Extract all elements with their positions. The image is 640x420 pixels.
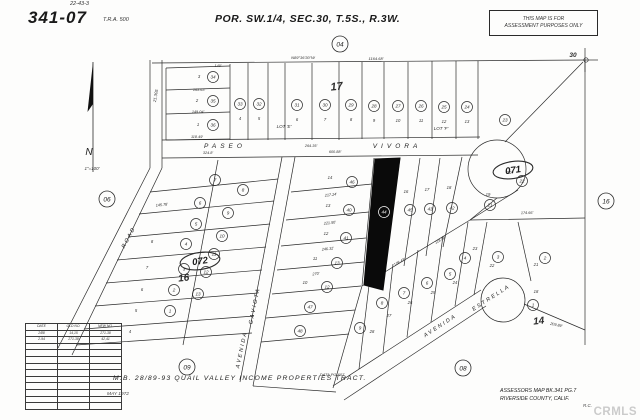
correction-cell xyxy=(58,356,90,363)
map-annotation: 14 xyxy=(533,315,546,327)
correction-cell xyxy=(26,389,58,396)
lot-number: 26 xyxy=(407,300,413,305)
map-annotation: 246.32' xyxy=(321,246,335,251)
correction-cell: 2-94 xyxy=(26,337,58,344)
lot-number: 21 xyxy=(533,262,539,267)
parcel-boundary-line xyxy=(470,218,585,220)
lot-number: 28 xyxy=(369,329,375,334)
lot-number: 23 xyxy=(472,246,478,251)
map-annotation: 209.89' xyxy=(549,322,563,329)
map-annotation: 264.35' xyxy=(304,144,318,148)
correction-cell: 42,41 xyxy=(90,337,122,344)
map-book-page-number: 341-07 xyxy=(28,8,87,28)
lot-number: 14 xyxy=(328,175,333,180)
map-annotation: 1164.68' xyxy=(369,56,384,61)
adjacent-page-number: 09 xyxy=(183,364,191,371)
correction-cell xyxy=(90,343,122,350)
lot-number: 18 xyxy=(447,185,452,190)
assessment-disclaimer-box: THIS MAP IS FOR ASSESSMENT PURPOSES ONLY xyxy=(489,10,598,36)
correction-cell xyxy=(90,403,122,410)
parcel-number: 5 xyxy=(195,222,198,227)
correction-cell xyxy=(58,363,90,370)
parcel-number: 3 xyxy=(497,255,500,260)
parcel-boundary-line xyxy=(470,198,497,220)
lot-number: 24 xyxy=(452,280,458,285)
parcel-boundary-line xyxy=(407,250,418,337)
parcel-number: 22 xyxy=(518,179,525,184)
scale-label: 1"=100' xyxy=(84,166,99,171)
parcel-number: 44 xyxy=(381,210,387,215)
parcel-number: 36 xyxy=(210,123,216,128)
parcel-number: 2 xyxy=(543,256,547,261)
map-annotation: 221.50' xyxy=(323,220,337,225)
correction-cell xyxy=(26,350,58,357)
correction-cell xyxy=(58,383,90,390)
parcel-boundary-line xyxy=(281,238,366,246)
parcel-boundary-line xyxy=(344,306,486,400)
parcel-number: 7 xyxy=(214,178,217,183)
disclaimer-line1: THIS MAP IS FOR xyxy=(523,16,564,24)
parcel-number: 35 xyxy=(210,99,216,104)
parcel-number: 7 xyxy=(403,291,406,296)
north-arrow-icon xyxy=(88,62,94,112)
map-annotation: 174.66' xyxy=(521,211,534,215)
lot-number: 11 xyxy=(313,256,317,261)
assessor-line2: RIVERSIDE COUNTY, CALIF. xyxy=(500,396,576,404)
street-name-label: ESTRELLA xyxy=(471,284,511,313)
map-annotation: 270' xyxy=(311,272,320,277)
lot-number: 25 xyxy=(430,290,436,295)
lot-number: 16 xyxy=(404,189,409,194)
parcel-number: 13 xyxy=(334,261,340,266)
correction-cell: 271-38 xyxy=(90,330,122,337)
adjacent-page-number: 04 xyxy=(336,41,344,48)
map-date: MAY 1972 xyxy=(107,392,129,397)
map-annotation: 600.88' xyxy=(329,150,342,154)
correction-cell: 271-38 xyxy=(58,337,90,344)
lot-number: 5 xyxy=(135,308,138,313)
parcel-number: 9 xyxy=(227,211,230,216)
parcel-number: 25 xyxy=(440,105,447,110)
street-name-label: AVENIDA xyxy=(422,313,458,339)
street-name-label: AVENIDA xyxy=(235,331,249,370)
parcel-boundary-line xyxy=(162,155,478,158)
parcel-boundary-line xyxy=(277,262,364,270)
parcel-boundary-line xyxy=(431,236,443,322)
parcel-boundary-line xyxy=(505,62,583,142)
parcel-boundary-line xyxy=(443,157,462,247)
lot-number: 19 xyxy=(486,192,491,197)
lot-number: 7 xyxy=(324,117,327,122)
assessor-line1: ASSESSORS MAP BK.341 PG.7 xyxy=(500,388,576,396)
map-annotation: N89°36'30"W xyxy=(291,55,316,60)
lot-number: 17 xyxy=(425,187,430,192)
map-annotation: 163.63' xyxy=(193,88,206,92)
parcel-number: 4 xyxy=(185,242,188,247)
parcel-number: 4 xyxy=(464,256,467,261)
correction-cell xyxy=(58,396,90,403)
parcel-boundary-line xyxy=(128,224,270,237)
parcel-boundary-line xyxy=(474,222,487,295)
parcel-number: 27 xyxy=(394,104,401,109)
parcel-number: 23 xyxy=(501,118,508,123)
parcel-boundary-line xyxy=(253,157,295,386)
parcel-number: 41 xyxy=(343,236,349,241)
lot-number: 9 xyxy=(373,118,376,123)
parcel-number: 40 xyxy=(346,208,352,213)
correction-cell xyxy=(26,396,58,403)
correction-cell xyxy=(58,389,90,396)
parcel-boundary-line xyxy=(272,286,361,294)
parcel-boundary-line xyxy=(240,157,282,382)
parcel-number: 28 xyxy=(370,104,377,109)
parcel-number: 33 xyxy=(237,102,243,107)
disclaimer-line2: ASSESSMENT PURPOSES ONLY xyxy=(505,23,583,31)
correction-cell: 14,15 xyxy=(58,330,90,337)
correction-cell xyxy=(58,376,90,383)
tract-reference: M.B. 28/89-93 QUAIL VALLEY INCOME PROPER… xyxy=(113,375,367,382)
lot-number: 4 xyxy=(239,116,242,121)
adjacent-page-number: 06 xyxy=(103,196,111,203)
lot-number: 8 xyxy=(151,239,154,244)
lot-number: 3 xyxy=(198,74,201,79)
map-annotation: LOT 'F' xyxy=(434,126,449,131)
street-name-label: GAVIOTA xyxy=(248,287,262,325)
lot-number: 8 xyxy=(350,117,353,122)
map-annotation: 324.8' xyxy=(203,151,214,155)
cross-reference-number: 22-43-3 xyxy=(70,1,89,7)
parcel-number: 1 xyxy=(532,303,535,308)
correction-cell xyxy=(26,403,58,410)
parcel-number: 6 xyxy=(426,281,429,286)
north-label: N xyxy=(85,147,93,158)
parcel-number: 8 xyxy=(381,301,384,306)
parcel-number: 12 xyxy=(324,285,330,290)
map-annotation: 16 xyxy=(178,272,191,284)
correction-cell xyxy=(26,376,58,383)
lot-number: 22 xyxy=(489,263,495,268)
parcel-number: 8 xyxy=(242,188,245,193)
parcel-number: 10 xyxy=(219,234,225,239)
parcel-number: 26 xyxy=(417,104,424,109)
correction-cell: NEW NO. xyxy=(90,324,122,331)
correction-cell xyxy=(58,370,90,377)
parcel-number: 42 xyxy=(449,206,455,211)
map-annotation: 145.78' xyxy=(156,202,169,207)
crmls-watermark: CRMLS xyxy=(594,406,637,418)
lot-number: 7 xyxy=(146,265,149,270)
parcel-number: 12 xyxy=(203,270,209,275)
correction-cell: OLD NO. xyxy=(58,324,90,331)
parcel-number: 6 xyxy=(199,201,202,206)
correction-cell xyxy=(90,356,122,363)
highlighted-subject-parcel[interactable] xyxy=(364,158,400,290)
map-annotation: 149.04' xyxy=(192,110,205,114)
map-annotation: 17 xyxy=(330,80,344,93)
parcel-boundary-line xyxy=(455,222,468,306)
lot-number: 27 xyxy=(386,313,392,318)
correction-cell xyxy=(90,383,122,390)
parcel-number: 5 xyxy=(449,272,452,277)
parcel-number: 43 xyxy=(427,207,433,212)
map-annotation: LOT 'E' xyxy=(277,124,292,129)
lot-number: 10 xyxy=(303,280,308,285)
adjacent-page-number: 16 xyxy=(602,198,610,205)
street-name-label: VIVORA xyxy=(373,143,422,150)
parcel-number: 24 xyxy=(463,105,470,110)
correction-cell: DATE xyxy=(26,324,58,331)
map-title: POR. SW.1/4, SEC.30, T.5S., R.3W. xyxy=(215,13,400,25)
drafter-initials: R.C. xyxy=(583,403,592,408)
lot-number: 1 xyxy=(197,122,199,127)
parcel-number: 2 xyxy=(172,288,176,293)
lot-number: 11 xyxy=(419,118,423,123)
correction-cell xyxy=(26,343,58,350)
parcel-number: 32 xyxy=(256,102,262,107)
correction-cell xyxy=(26,370,58,377)
map-annotation: 21.305 xyxy=(152,88,159,103)
map-annotation: 140' xyxy=(214,64,221,68)
map-annotation: 30 xyxy=(569,52,577,59)
correction-cell xyxy=(26,363,58,370)
parcel-boundary-line xyxy=(518,222,531,281)
lot-number: 6 xyxy=(296,117,299,122)
parcel-number: 13 xyxy=(195,292,201,297)
lot-number: 13 xyxy=(465,119,470,124)
parcel-boundary-line xyxy=(253,386,336,392)
lot-number: 5 xyxy=(258,116,261,121)
street-name-label: ROAD xyxy=(121,226,138,250)
lot-number: 10 xyxy=(396,118,401,123)
lot-number: 12 xyxy=(442,119,447,124)
lot-number: 4 xyxy=(129,329,132,334)
lot-number: 6 xyxy=(141,287,144,292)
parcel-number: 21 xyxy=(486,203,493,208)
parcel-number: 46 xyxy=(349,180,355,185)
map-annotation: 217.24' xyxy=(324,192,338,197)
parcel-number: 34 xyxy=(210,75,216,80)
lot-number: 2 xyxy=(195,98,199,103)
correction-cell xyxy=(58,403,90,410)
correction-cell xyxy=(58,350,90,357)
map-annotation: 118.49' xyxy=(191,135,203,139)
parcel-number: 29 xyxy=(347,103,354,108)
parcel-boundary-line xyxy=(266,310,355,318)
block-number: 072 xyxy=(191,255,209,268)
assessor-attribution: ASSESSORS MAP BK.341 PG.7 RIVERSIDE COUN… xyxy=(500,388,576,403)
tax-rate-area: T.R.A. 500 xyxy=(103,17,129,23)
parcel-number: 31 xyxy=(294,103,300,108)
correction-cell xyxy=(26,383,58,390)
parcel-number: 1 xyxy=(169,309,172,314)
block-number: 071 xyxy=(504,164,521,177)
parcel-boundary-line xyxy=(286,212,369,220)
correction-cell xyxy=(90,363,122,370)
parcel-number: 48 xyxy=(297,329,303,334)
map-annotation: 118.84' xyxy=(434,235,447,244)
parcel-boundary-line xyxy=(291,184,372,192)
parcel-number: 9 xyxy=(359,326,362,331)
lot-number: 13 xyxy=(326,203,331,208)
parcel-number: 47 xyxy=(307,305,313,310)
correction-cell xyxy=(90,350,122,357)
adjacent-page-number: 08 xyxy=(459,365,467,372)
street-name-label: PASEO xyxy=(204,143,246,150)
correction-cell: 2/88 xyxy=(26,330,58,337)
parcel-number: 30 xyxy=(322,103,328,108)
assessor-map-page: 3435363332313029282726252423222123145678… xyxy=(0,0,640,420)
lot-number: 12 xyxy=(324,231,329,236)
parcel-boundary-line xyxy=(261,334,349,342)
correction-cell xyxy=(90,396,122,403)
lot-number: 18 xyxy=(534,289,539,294)
correction-cell xyxy=(58,343,90,350)
parcel-number: 45 xyxy=(407,208,413,213)
correction-cell xyxy=(26,356,58,363)
